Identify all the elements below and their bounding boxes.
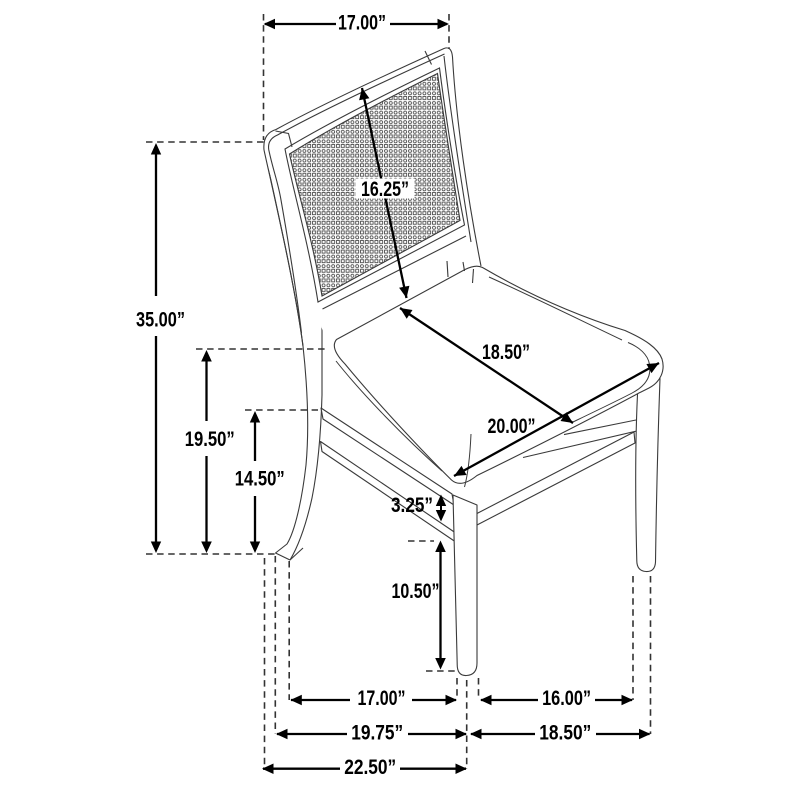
svg-text:17.00”: 17.00” xyxy=(338,12,386,35)
svg-text:3.25”: 3.25” xyxy=(391,494,433,517)
svg-text:16.25”: 16.25” xyxy=(361,178,409,201)
svg-text:10.50”: 10.50” xyxy=(392,580,440,603)
svg-text:14.50”: 14.50” xyxy=(235,468,285,491)
svg-text:35.00”: 35.00” xyxy=(136,309,185,332)
svg-text:20.00”: 20.00” xyxy=(488,415,536,438)
svg-text:19.50”: 19.50” xyxy=(185,428,235,451)
svg-text:16.00”: 16.00” xyxy=(542,687,591,710)
svg-text:18.50”: 18.50” xyxy=(482,341,530,364)
svg-text:17.00”: 17.00” xyxy=(358,687,406,710)
svg-text:22.50”: 22.50” xyxy=(344,756,396,779)
svg-text:19.75”: 19.75” xyxy=(351,722,403,745)
svg-text:18.50”: 18.50” xyxy=(539,722,591,745)
